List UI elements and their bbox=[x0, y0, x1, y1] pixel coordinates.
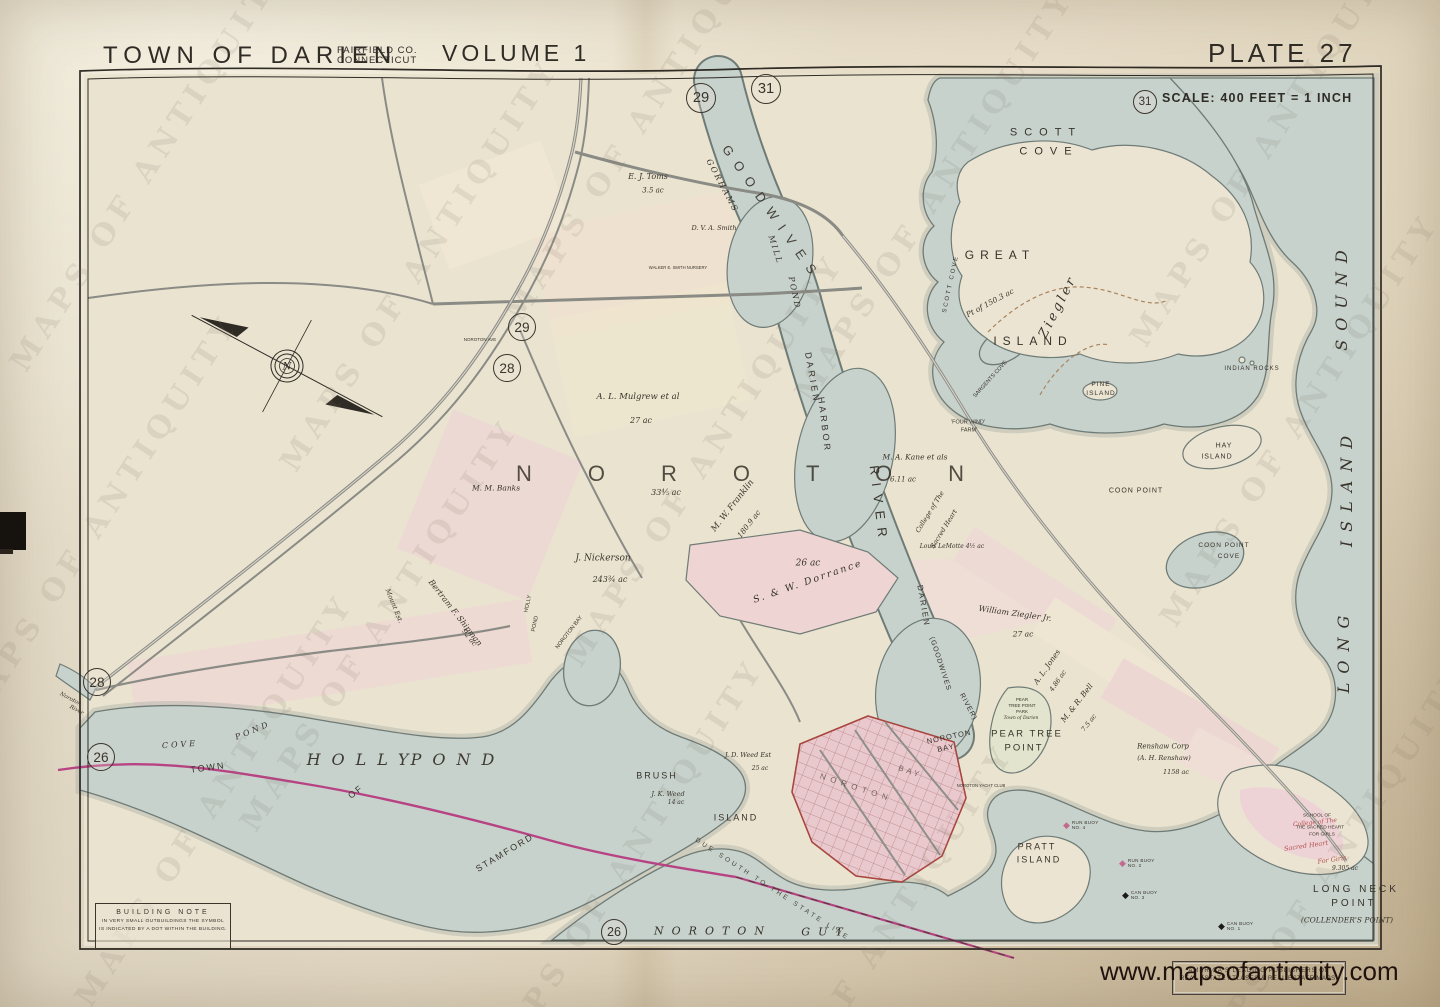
map-canvas: N bbox=[0, 0, 1440, 1007]
county-line2: CONNECTICUT bbox=[337, 55, 417, 66]
building-note-title: BUILDING NOTE bbox=[96, 909, 230, 916]
building-note-line1: IN VERY SMALL OUTBUILDINGS THE SYMBOL bbox=[96, 919, 230, 924]
edge-tab bbox=[0, 512, 26, 550]
building-note-line2: IS INDICATED BY A DOT WITHIN THE BUILDIN… bbox=[96, 927, 230, 932]
volume-label: VOLUME 1 bbox=[442, 40, 590, 67]
plate-label: PLATE 27 bbox=[1208, 38, 1357, 69]
edge-tab-small bbox=[0, 549, 13, 554]
scale-label: SCALE: 400 FEET = 1 INCH bbox=[1162, 91, 1352, 105]
atlas-sheet: N TOWN OF DARIEN FAIRFIELD CO. CONNECTIC… bbox=[0, 0, 1440, 1007]
svg-text:N: N bbox=[282, 362, 293, 373]
website-url: www.mapsofantiquity.com bbox=[1100, 956, 1399, 987]
building-note-box: BUILDING NOTE IN VERY SMALL OUTBUILDINGS… bbox=[95, 903, 231, 949]
